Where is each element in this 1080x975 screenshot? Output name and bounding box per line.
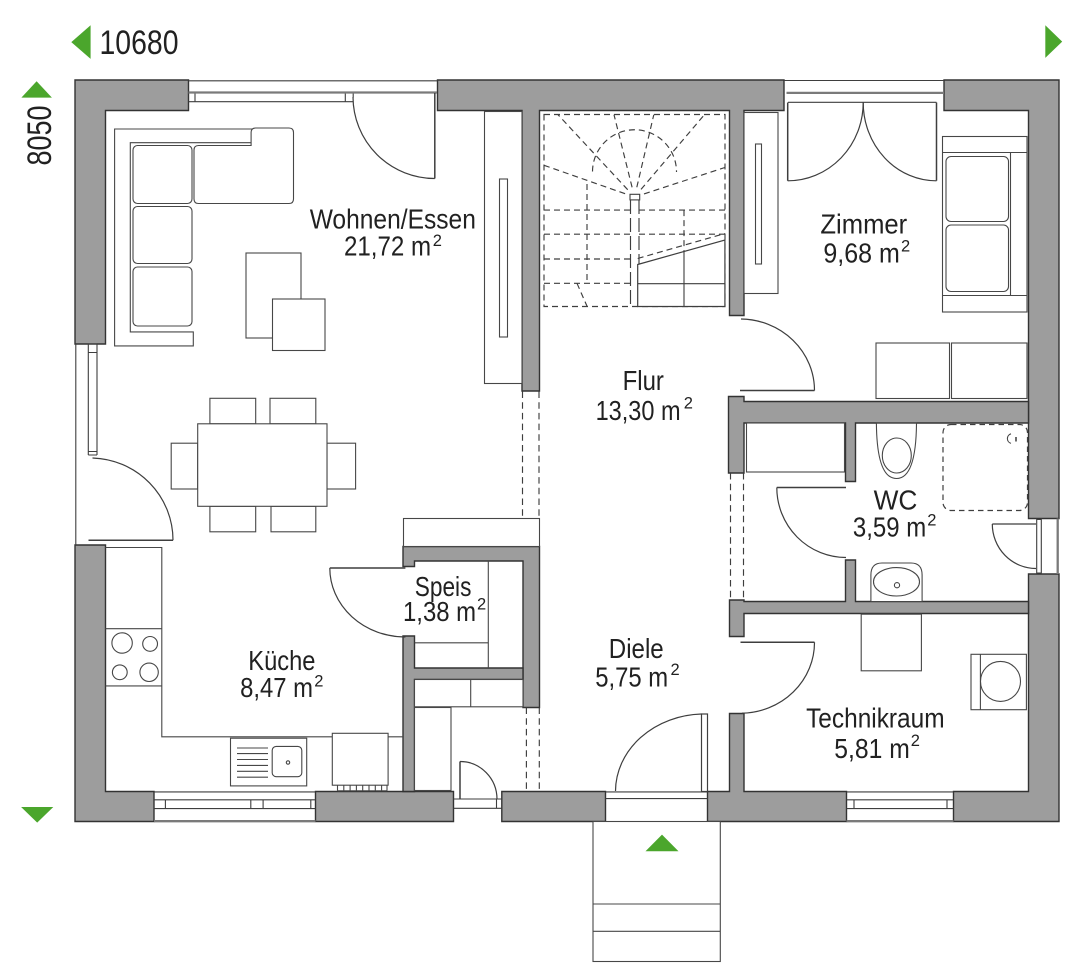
svg-text:2: 2 — [477, 596, 486, 614]
svg-text:Diele: Diele — [609, 633, 664, 664]
svg-text:21,72 m: 21,72 m — [344, 231, 431, 262]
svg-text:3,59 m: 3,59 m — [853, 512, 926, 543]
svg-text:13,30 m: 13,30 m — [596, 395, 681, 426]
svg-text:2: 2 — [314, 673, 323, 691]
svg-text:8050: 8050 — [21, 106, 59, 166]
svg-text:Zimmer: Zimmer — [820, 209, 907, 240]
svg-text:Technikraum: Technikraum — [806, 703, 945, 734]
svg-text:2: 2 — [911, 732, 920, 750]
svg-text:10680: 10680 — [100, 24, 179, 62]
svg-text:5,75 m: 5,75 m — [595, 661, 668, 692]
svg-text:1,38 m: 1,38 m — [403, 596, 476, 627]
svg-text:2: 2 — [684, 394, 693, 412]
svg-text:Flur: Flur — [623, 365, 664, 396]
svg-text:2: 2 — [433, 232, 442, 250]
svg-text:2: 2 — [901, 238, 910, 256]
svg-text:2: 2 — [927, 512, 936, 530]
svg-text:5,81 m: 5,81 m — [834, 733, 910, 764]
svg-text:2: 2 — [671, 661, 680, 679]
svg-text:9,68 m: 9,68 m — [823, 238, 899, 269]
svg-text:8,47 m: 8,47 m — [240, 672, 313, 703]
